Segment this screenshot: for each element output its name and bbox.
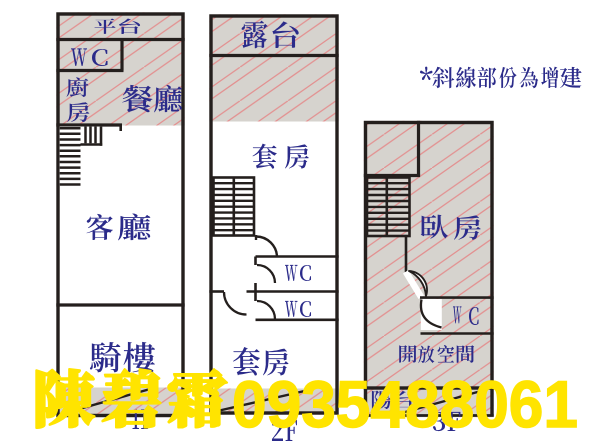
svg-text:0935488061: 0935488061: [232, 367, 578, 441]
